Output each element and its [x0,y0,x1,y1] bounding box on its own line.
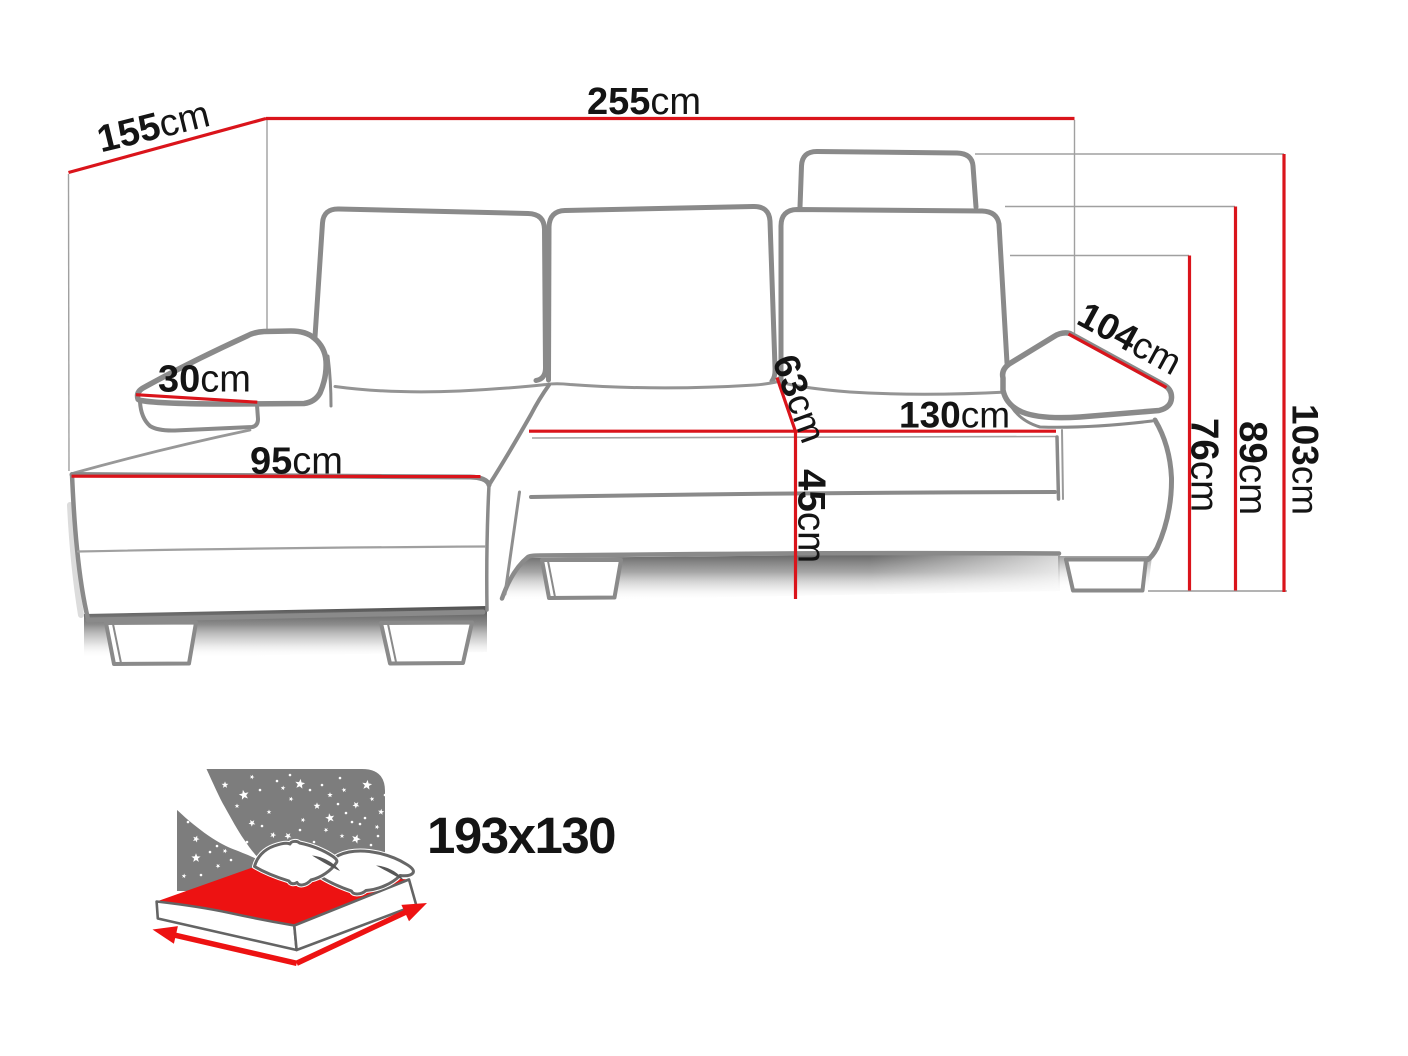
svg-text:103cm: 103cm [1285,404,1326,515]
svg-text:45cm: 45cm [790,469,833,563]
svg-text:95cm: 95cm [250,441,343,483]
svg-text:76cm: 76cm [1183,418,1226,512]
svg-text:255cm: 255cm [587,81,701,123]
svg-text:193x130: 193x130 [427,807,615,864]
svg-text:130cm: 130cm [899,395,1010,436]
svg-text:30cm: 30cm [158,359,251,401]
svg-text:89cm: 89cm [1231,421,1274,515]
